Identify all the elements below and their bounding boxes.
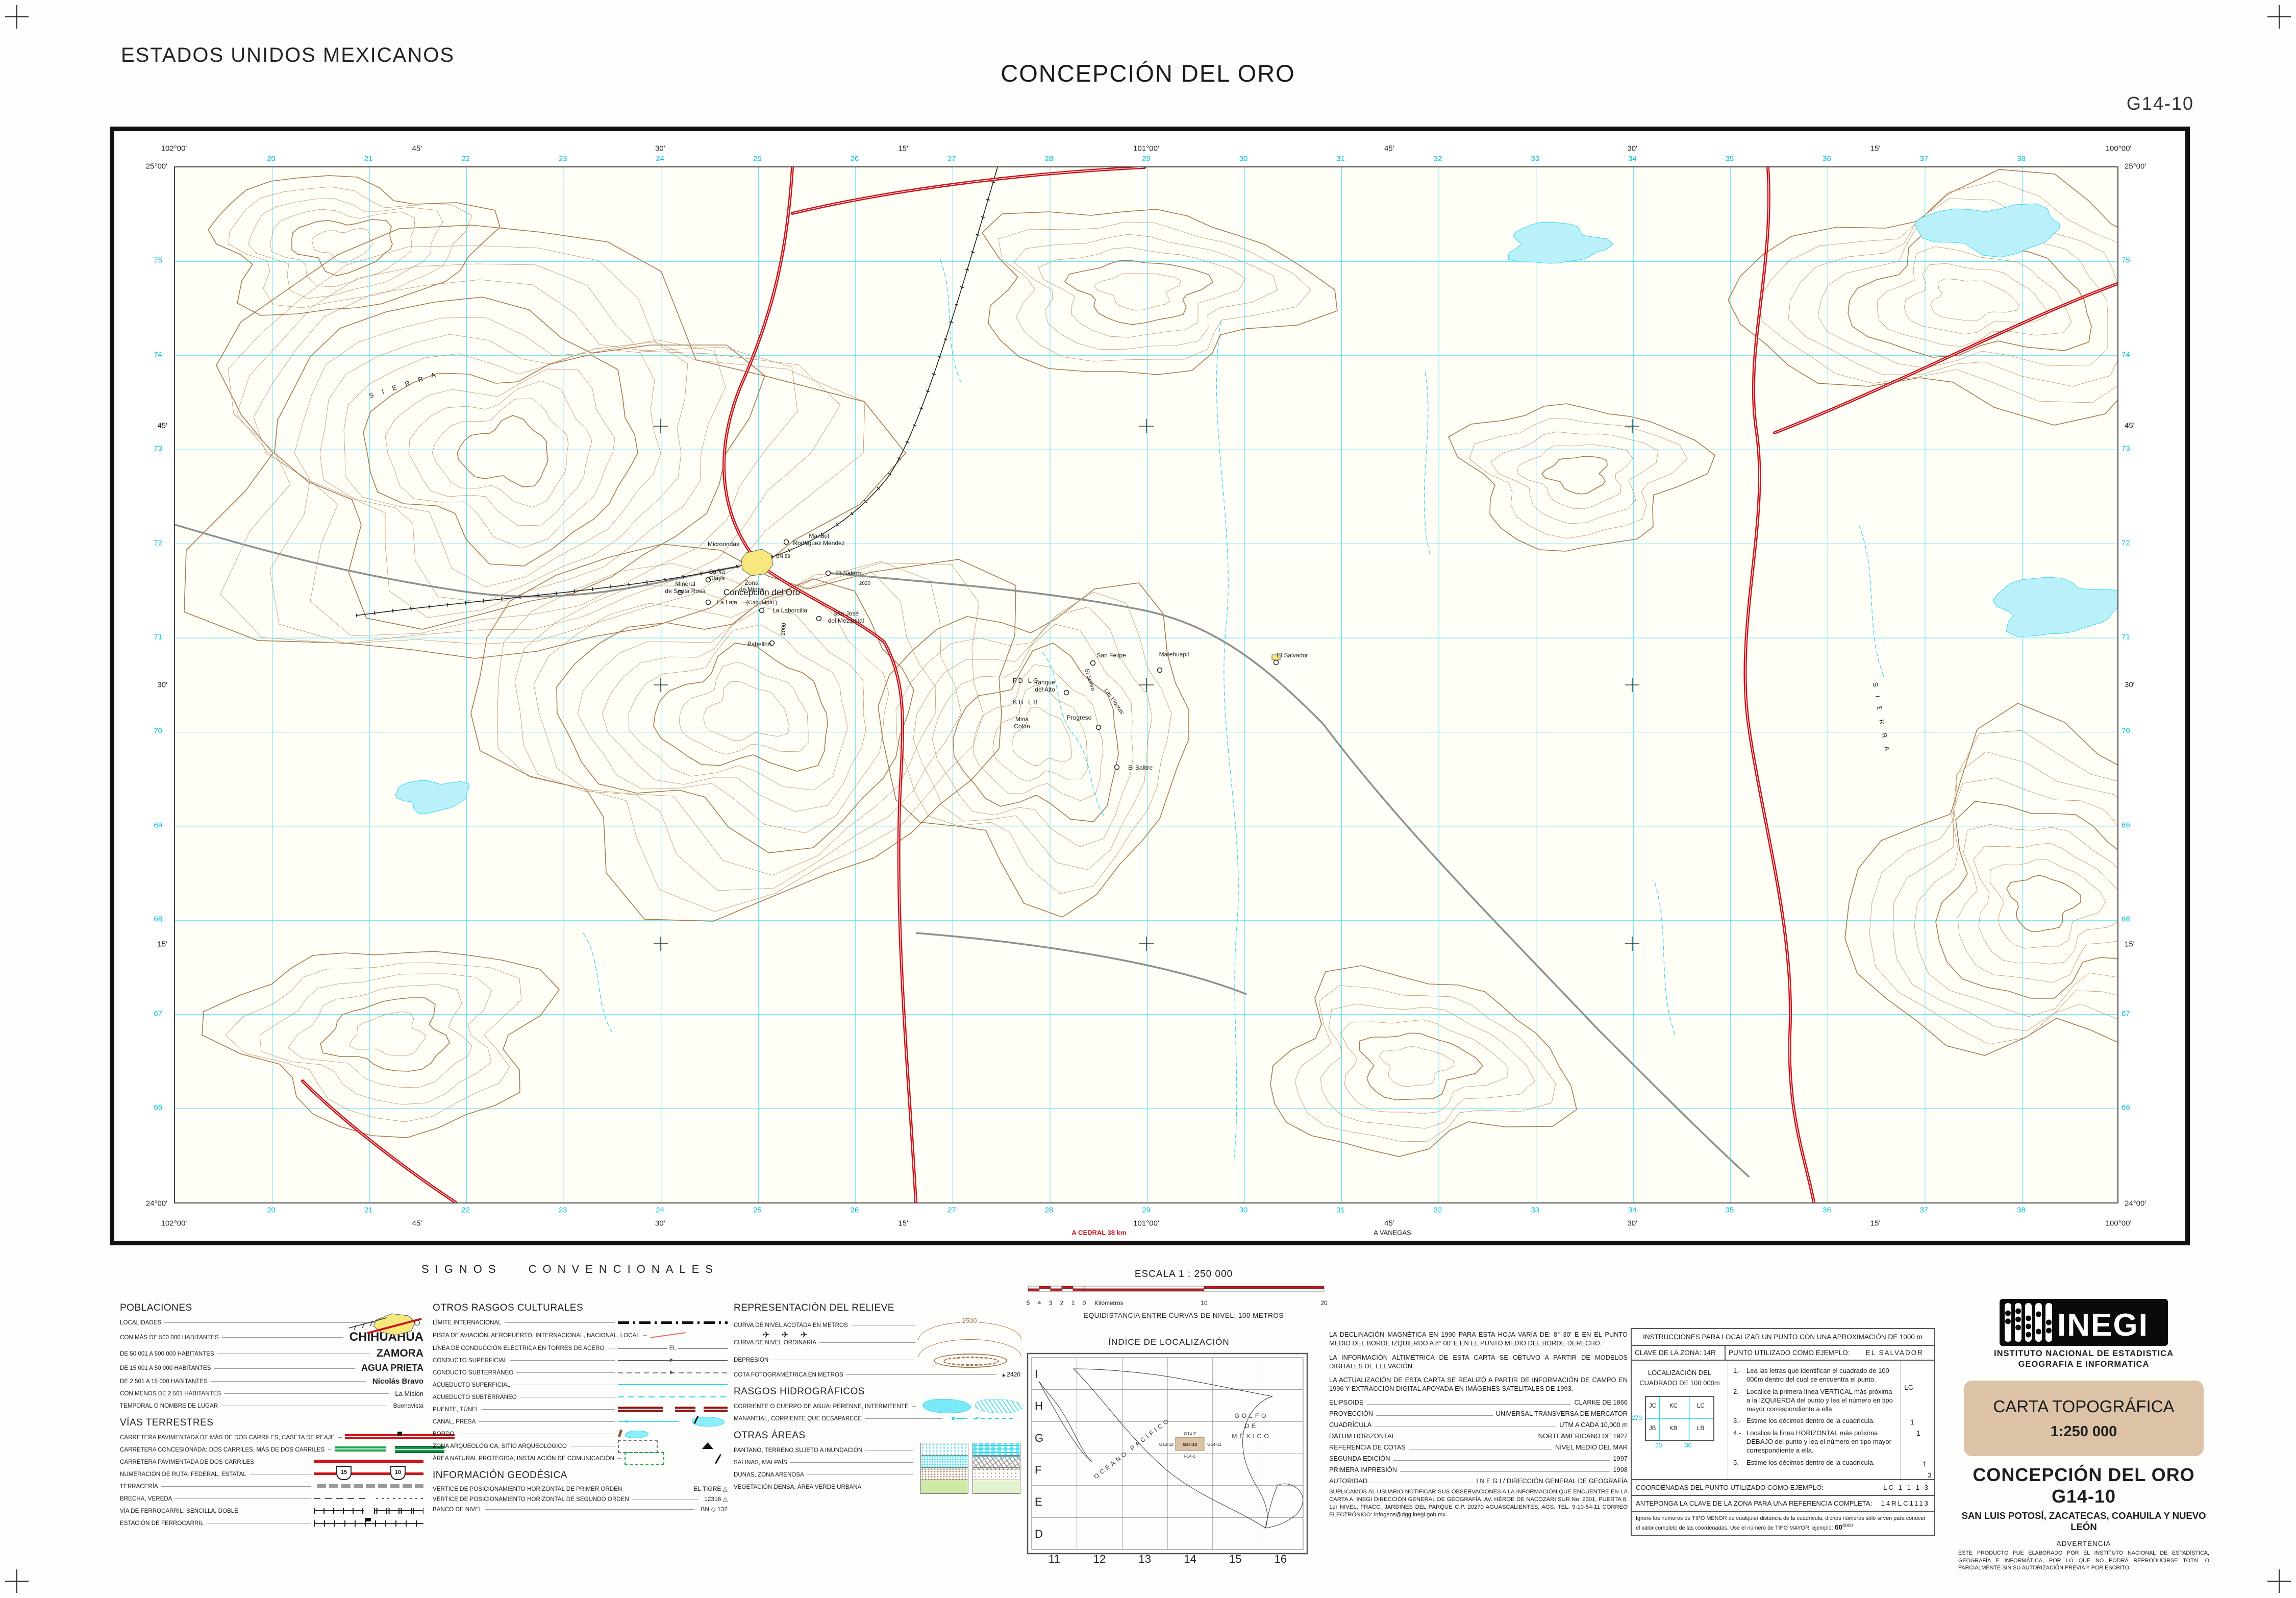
legend-swatch: [625, 1454, 734, 1463]
leader-line: [217, 1353, 370, 1354]
locator-grid: JC KC LC JB KB LB 20 30 270: [1645, 1396, 1714, 1441]
map-edge-label: 72: [154, 538, 162, 547]
map-label: Manuel: [809, 532, 829, 539]
graticule-cross: [654, 937, 668, 951]
map-edge-label: 73: [2122, 445, 2130, 453]
legend-swatch: [618, 1429, 728, 1438]
legend-swatch: [618, 1392, 728, 1402]
map-edge-label: 33: [1531, 155, 1539, 163]
contour-line: [704, 681, 789, 741]
metadata-row: SEGUNDA EDICIÓN 1997: [1329, 1455, 1628, 1462]
scale-title: ESCALA 1 : 250 000: [1023, 1269, 1344, 1280]
legend-row: MANANTIAL, CORRIENTE QUE DESAPARECE: [734, 1414, 1020, 1423]
legend-row: BORDO: [433, 1429, 728, 1438]
map-edge-label: 70: [154, 727, 162, 735]
map-label: 2020: [859, 581, 871, 586]
map-edge-label: 34: [1628, 155, 1637, 163]
leader-line: [249, 1473, 311, 1474]
legend-row: PANTANO, TERRENO SUJETO A INUNDACIÓN: [734, 1445, 1020, 1455]
town-marker: [706, 600, 711, 605]
leader-line: [241, 1510, 311, 1511]
svg-text:G14-10: G14-10: [1183, 1442, 1197, 1447]
railway: [356, 167, 997, 616]
map-label: San Felipe: [1096, 652, 1126, 659]
states-covered: SAN LUIS POTOSÍ, ZACATECAS, COAHUILA Y N…: [1958, 1510, 2209, 1533]
map-label: del Mezquital: [828, 617, 864, 624]
svg-text:G14-11: G14-11: [1207, 1442, 1221, 1447]
map-label: Mina: [1015, 716, 1029, 723]
map-edge-label: 70: [2122, 727, 2130, 735]
graticule-cross: [1139, 419, 1154, 433]
feedback-note: SUPLICAMOS AL USUARIO NOTIFICAR SUS OBSE…: [1329, 1488, 1628, 1519]
map-label: de Santa Rosa: [665, 587, 706, 595]
map-label: de Minas: [739, 586, 764, 593]
map-edge-label: 31: [1336, 1206, 1345, 1215]
contour-line: [1542, 456, 1607, 494]
legend-column-1: POBLACIONES LOCALIDADES CON MÁS DE 500 0…: [120, 1302, 423, 1531]
town-marker: [1096, 725, 1101, 730]
leader-line: [865, 1449, 913, 1451]
legend-swatch: [314, 1482, 423, 1491]
graticule-cross: [1625, 419, 1639, 433]
leader-line: [643, 1335, 647, 1336]
town-marker: [784, 540, 789, 545]
highway: [792, 167, 1144, 213]
map-label: San José: [833, 610, 859, 617]
map-label: del Alto: [1035, 686, 1055, 693]
legend-swatch: [618, 1356, 728, 1365]
leader-line: [819, 1342, 915, 1343]
legend-swatch: [916, 1482, 1020, 1491]
map-label: Mineral: [675, 580, 695, 587]
contour-line: [288, 985, 472, 1088]
contour-line: [993, 685, 1087, 781]
contour-line: [350, 1012, 426, 1056]
map-label: KB LB: [1013, 698, 1039, 706]
map-edge-label: 23: [559, 1206, 567, 1215]
contour-line: [344, 348, 661, 587]
contour-line: [1914, 778, 2117, 1017]
contour-line: [457, 415, 548, 487]
scale-tick: 3: [1049, 1299, 1053, 1307]
contour-line: [1270, 966, 1577, 1157]
equidistance-note: EQUIDISTANCIA ENTRE CURVAS DE NIVEL: 100…: [1023, 1312, 1344, 1319]
map-label: Rodríguez Méndez: [793, 539, 844, 547]
map-edge-label: 38: [2017, 155, 2026, 163]
legend-row: BANCO DE NIVEL BN ◇ 132: [433, 1506, 728, 1513]
leader-line: [222, 1337, 343, 1338]
leader-line: [211, 1381, 366, 1382]
map-edge-label: 37: [1920, 1206, 1929, 1215]
contour-line: [260, 974, 492, 1104]
svg-text:16: 16: [1275, 1553, 1287, 1565]
map-edge-label: 33: [1531, 1206, 1539, 1215]
map-title: CONCEPCIÓN DEL ORO: [0, 59, 2296, 87]
map-edge-label: 21: [364, 155, 373, 163]
scale-numbers: 543210Kilómetros1020: [1023, 1299, 1344, 1309]
town-marker: [817, 617, 821, 621]
legend-row: TEMPORAL O NOMBRE DE LUGAR Buenavista: [120, 1401, 423, 1410]
leader-line: [1409, 1448, 1552, 1449]
map-edge-label: 30': [157, 681, 167, 690]
leader-line: [221, 1405, 387, 1406]
map-edge-label: 35: [1725, 155, 1734, 163]
legend-row: CARRETERA PAVIMENTADA DE MÁS DE DOS CARR…: [120, 1433, 423, 1442]
leader-line: [1375, 1426, 1556, 1427]
map-edge-label: 69: [154, 821, 162, 829]
dirt-road: [916, 933, 1246, 994]
map-label: Olaya: [709, 575, 725, 582]
graticule-cross: [1625, 937, 1639, 951]
map-edge-label: 34: [1628, 1206, 1637, 1215]
leader-line: [1399, 1437, 1535, 1438]
corner-cross: [2267, 5, 2291, 29]
map-label: FD LC: [1013, 677, 1040, 684]
town-marker: [760, 608, 764, 613]
map-edge-label: 15': [898, 1219, 908, 1228]
step-result: 1: [1901, 1429, 1934, 1437]
contour-line: [1931, 279, 2019, 321]
map-edge-label: 29: [1142, 155, 1151, 163]
scale-tick: Kilómetros: [1094, 1299, 1124, 1307]
map-edge-label: 45': [1384, 144, 1394, 153]
map-label: El Salero: [1083, 668, 1096, 692]
legend-swatch: [314, 1494, 423, 1503]
map-edge-label: 25: [753, 1206, 762, 1215]
legend-swatch: 1510: [314, 1469, 423, 1479]
leader-line: [1376, 1415, 1493, 1416]
map-edge-label: 73: [154, 445, 162, 453]
legend-swatch: [918, 1353, 1020, 1367]
legend-row: DUNAS, ZONA ARENOSA: [734, 1470, 1020, 1479]
legend-row: DE 2 501 A 15 000 HABITANTES Nicolás Bra…: [120, 1376, 423, 1386]
metadata-row: DATUM HORIZONTAL NORTEAMERICANO DE 1927: [1329, 1432, 1628, 1440]
town-sample-icon: [347, 1311, 423, 1342]
contour-line: [679, 662, 808, 754]
map-edge-label: 24: [656, 155, 664, 163]
map-label: (Cab. Mpal.): [746, 600, 778, 606]
water-body: [395, 780, 469, 814]
map-edge-label: 67: [154, 1009, 162, 1018]
legend-row: LÍMITE INTERNACIONAL: [433, 1318, 728, 1327]
contour-line: [208, 176, 500, 315]
svg-text:F: F: [1035, 1463, 1041, 1476]
legend-otras: OTRAS ÁREAS PANTANO, TERRENO SUJETO A IN…: [734, 1430, 1020, 1491]
town-marker: [1274, 660, 1279, 665]
map-label: Zona: [744, 579, 759, 586]
contour-line: [471, 544, 1016, 921]
leader-line: [771, 1359, 915, 1360]
contour-line: [878, 583, 1189, 917]
scale-bar: [1023, 1284, 1335, 1299]
contour-line: [385, 369, 615, 548]
map-edge-label: 35: [1725, 1206, 1734, 1215]
leader-line: [479, 1421, 615, 1422]
svg-text:H: H: [1035, 1399, 1043, 1412]
legend-swatch: 2500: [918, 1318, 1020, 1332]
map-label: Progreso: [1067, 714, 1092, 721]
highway: [1745, 167, 1814, 1202]
legend-swatch: [918, 1335, 1020, 1349]
map-edge-label: 102°00': [161, 1219, 187, 1228]
map-notes: LA DECLINACIÓN MAGNÉTICA EN 1990 PARA ES…: [1329, 1330, 1628, 1525]
map-edge-label: 15': [1870, 144, 1881, 153]
map-edge-label: 28: [1045, 155, 1054, 163]
map-edge-label: 24: [656, 1206, 664, 1215]
legend-row: VÍA DE FERROCARRIL: SENCILLA, DOBLE: [120, 1506, 423, 1515]
stream: [583, 933, 614, 1035]
full-reference: 14RLC1113: [1881, 1499, 1930, 1507]
instruction-step: 5.- Estime los décimos dentro de la cuad…: [1733, 1459, 1898, 1467]
town-marker: [1064, 691, 1069, 695]
contour-line: [202, 951, 559, 1138]
legend-row: CURVA DE NIVEL ORDINARIA: [734, 1335, 1020, 1349]
legend-relieve: REPRESENTACIÓN DEL RELIEVE CURVA DE NIVE…: [734, 1302, 1020, 1379]
leader-line: [864, 1486, 913, 1487]
contour-line: [1936, 801, 2117, 998]
legend-row: CON MENOS DE 2 501 HABITANTES La Misión: [120, 1389, 423, 1398]
legend-row: VÉRTICE DE POSICIONAMIENTO HORIZONTAL DE…: [433, 1485, 728, 1492]
highway: [303, 1081, 456, 1202]
contour-line: [229, 187, 472, 308]
map-edge-label: 36: [1823, 1206, 1831, 1215]
map-label: Microondas: [708, 540, 739, 548]
legend-swatch: [618, 1405, 728, 1414]
contour-line: [1014, 234, 1278, 350]
map-edge-label: 45': [412, 144, 422, 153]
svg-text:12: 12: [1093, 1553, 1106, 1565]
contour-line: [1845, 703, 2117, 1055]
legend-swatch: [314, 1457, 423, 1466]
map-edge-label: 100°00': [2106, 144, 2132, 153]
legend-vias: VÍAS TERRESTRES CARRETERA PAVIMENTADA DE…: [120, 1417, 423, 1528]
svg-text:G14-7: G14-7: [1184, 1431, 1196, 1436]
legend-column-3: REPRESENTACIÓN DEL RELIEVE CURVA DE NIVE…: [734, 1302, 1020, 1494]
leader-line: [617, 1458, 621, 1459]
map-edge-label: 71: [154, 633, 162, 642]
map-label: Colón: [1014, 723, 1030, 730]
map-area[interactable]: Concepción del Oro(Cab. Mpal.)Microondas…: [174, 166, 2118, 1203]
leader-line: [912, 1406, 916, 1407]
water-body: [1915, 204, 2060, 257]
graticule-cross: [654, 678, 668, 692]
contour-line: [1094, 273, 1181, 310]
leader-line: [790, 1462, 913, 1463]
svg-text:G: G: [1035, 1432, 1043, 1444]
map-edge-label: 24°00': [146, 1199, 167, 1208]
contour-line: [320, 998, 450, 1071]
map-edge-label: 72: [2122, 538, 2130, 547]
map-edge-label: 26: [851, 1206, 859, 1215]
legend-swatch: [618, 1318, 728, 1327]
contour-line: [226, 963, 521, 1122]
legend-swatch: [945, 1414, 1020, 1423]
step-result: 3: [1901, 1471, 1934, 1479]
leader-line: [328, 1449, 332, 1450]
map-label: 2000: [780, 623, 787, 635]
map-edge-label: 25: [753, 155, 762, 163]
topographic-map[interactable]: Concepción del Oro(Cab. Mpal.)Microondas…: [175, 167, 2117, 1202]
map-edge-label: 68: [154, 915, 162, 924]
stream: [1859, 525, 1884, 678]
contour-line: [1848, 231, 2091, 357]
map-edge-label: 100°00': [2106, 1219, 2132, 1228]
mexico-locator-map: IHGFED111213141516OCÉANO PACÍFICOGOLFODE…: [1025, 1351, 1313, 1568]
pacific-label: OCÉANO PACÍFICO: [1092, 1416, 1172, 1480]
mexico-outline: [1265, 1484, 1303, 1528]
metadata-row: REFERENCIA DE COTAS NIVEL MEDIO DEL MAR: [1329, 1443, 1628, 1451]
graticule-cross: [1139, 678, 1154, 692]
contour-line: [312, 228, 372, 262]
example-point: EL SALVADOR: [1866, 1349, 1924, 1357]
legend-row: PUENTE, TÚNEL: [433, 1405, 728, 1414]
legend-cultural: OTROS RASGOS CULTURALES LÍMITE INTERNACI…: [433, 1302, 728, 1463]
svg-text:F14-1: F14-1: [1184, 1454, 1195, 1459]
sheet-code: G14-10: [2127, 93, 2194, 114]
sheet-name: CONCEPCIÓN DEL ORO G14-10: [1958, 1464, 2209, 1507]
scale-tick: 0: [1083, 1299, 1086, 1307]
legend-row: CONDUCTO SUPERFICIAL: [433, 1356, 728, 1365]
map-label: El Salero: [836, 570, 861, 577]
contour-line: [1958, 824, 2117, 982]
legend-row: CANAL, PRESA: [433, 1417, 728, 1426]
leader-line: [1367, 1404, 1571, 1405]
contour-line: [999, 222, 1311, 361]
map-edge-label: 30: [1239, 155, 1248, 163]
scale-tick: 1: [1071, 1299, 1075, 1307]
altimetry-note: LA INFORMACIÓN ALTIMÉTRICA DE ESTA CARTA…: [1329, 1353, 1628, 1371]
zone-key: CLAVE DE LA ZONA: 14R: [1632, 1346, 1726, 1360]
highway: [1775, 282, 2117, 433]
instruction-step: 2.- Localice la primera línea VERTICAL m…: [1733, 1388, 1898, 1414]
contour-line: [1728, 169, 2117, 425]
map-edge-label: 26: [851, 155, 859, 163]
svg-text:14: 14: [1184, 1553, 1196, 1565]
leader-line: [865, 1418, 942, 1419]
legend-swatch: [335, 1445, 444, 1454]
instruction-step: 3.- Estime los décimos dentro de la cuad…: [1733, 1417, 1898, 1425]
corner-cross: [5, 1569, 29, 1593]
contour-line: [220, 245, 865, 644]
leader-line: [207, 1522, 311, 1523]
leader-line: [161, 1486, 311, 1487]
stream: [1655, 882, 1675, 1035]
map-edge-label: 21: [364, 1206, 373, 1215]
svg-text:13: 13: [1139, 1553, 1151, 1565]
svg-text:11: 11: [1049, 1553, 1060, 1565]
contour-line: [1904, 263, 2047, 334]
map-edge-label: 30': [655, 144, 665, 153]
contour-line: [432, 399, 568, 507]
leader-line: [482, 1409, 615, 1410]
scale-tick: 4: [1038, 1299, 1041, 1307]
corner-cross: [5, 5, 29, 29]
leader-line: [224, 1393, 389, 1394]
map-edge-label: 66: [154, 1103, 162, 1112]
legend-swatch: EL: [618, 1343, 728, 1353]
map-edge-label: 101°00': [1133, 144, 1159, 153]
contour-line: [1359, 1033, 1483, 1100]
map-edge-label: 102°00': [161, 144, 187, 153]
leader-line: [458, 1433, 615, 1434]
map-edge-label: 15': [2125, 940, 2135, 949]
leader-line: [851, 1324, 915, 1325]
legend-row: SALINAS, MALPAÍS: [734, 1458, 1020, 1467]
map-edge-label: 68: [2122, 915, 2130, 924]
legend-row: CARRETERA PAVIMENTADA DE DOS CARRILES: [120, 1457, 423, 1466]
map-edge-label: 45': [157, 422, 167, 430]
publisher-block: INEGI INSTITUTO NACIONAL DE ESTADISTICA …: [1958, 1299, 2209, 1572]
legend-poblaciones: POBLACIONES LOCALIDADES CON MÁS DE 500 0…: [120, 1302, 423, 1410]
example-coordinates: LC 1 1 1 3: [1883, 1484, 1930, 1491]
map-edge-label: 37: [1920, 155, 1929, 163]
map-edge-label: 27: [947, 155, 956, 163]
stream: [1216, 321, 1238, 1163]
map-edge-label: 45': [1384, 1219, 1394, 1228]
dirt-road: [831, 573, 1323, 724]
legend-swatch: [314, 1518, 423, 1528]
legend-row: DE 15 001 A 50 000 HABITANTES AGUA PRIET…: [120, 1363, 423, 1373]
legend-row: ZONA ARQUEOLÓGICA, SITIO ARQUEOLÓGICO: [433, 1441, 728, 1451]
leader-line: [516, 1372, 615, 1373]
map-edge-label: 27: [947, 1206, 956, 1215]
step-result: 1: [1901, 1418, 1934, 1426]
stream: [1424, 372, 1430, 555]
map-edge-label: 30': [2125, 681, 2135, 690]
contour-line: [982, 209, 1337, 375]
map-frame: 102°00'45'30'15'101°00'45'30'15'100°00'1…: [110, 127, 2190, 1245]
svg-text:INEGI: INEGI: [2057, 1308, 2149, 1343]
legend-row: ÁREA NATURAL PROTEGIDA, INSTALACIÓN DE C…: [433, 1454, 728, 1463]
update-note: LA ACTUALIZACIÓN DE ESTA CARTA SE REALIZ…: [1329, 1375, 1628, 1393]
leader-line: [807, 1474, 913, 1475]
metadata-row: AUTORIDAD I N E G I / DIRECCIÓN GENERAL …: [1329, 1477, 1628, 1485]
contour-line: [896, 592, 1171, 894]
contour-line: [534, 572, 936, 875]
leader-line: [520, 1396, 615, 1397]
map-edge-label: 75: [2122, 256, 2130, 265]
water-body: [1508, 222, 1613, 263]
map-label: Las Víboras: [1103, 687, 1126, 716]
map-label: El Salitre: [1128, 764, 1153, 771]
contour-line: [1379, 1046, 1454, 1087]
svg-text:D: D: [1035, 1528, 1043, 1540]
contour-line: [1469, 419, 1687, 538]
legend-swatch: [916, 1445, 1020, 1455]
leader-line: [608, 1347, 615, 1348]
scale-tick: 2: [1060, 1299, 1064, 1307]
stream: [1042, 652, 1104, 816]
legend-swatch: [916, 1470, 1020, 1479]
contour-line: [515, 561, 961, 891]
leader-line: [632, 1498, 698, 1499]
scale-tick: 20: [1320, 1299, 1327, 1307]
legend-row: TERRACERÍA: [120, 1482, 423, 1491]
map-label: BN 89: [776, 554, 790, 559]
legend-swatch: [618, 1417, 728, 1426]
legend-row: DEPRESIÓN: [734, 1353, 1020, 1367]
contour-line: [1974, 843, 2117, 964]
contour-line: [409, 381, 592, 526]
leader-line: [510, 1360, 615, 1361]
map-edge-label: 75: [154, 256, 162, 265]
svg-text:E: E: [1035, 1495, 1042, 1508]
scale-tick: 10: [1201, 1299, 1207, 1307]
map-edge-label: 36: [1823, 155, 1831, 163]
legend-row: ESTACIÓN DE FERROCARRIL: [120, 1518, 423, 1528]
map-label: Pabellón: [747, 641, 771, 648]
map-edge-label: 45': [2125, 422, 2135, 430]
